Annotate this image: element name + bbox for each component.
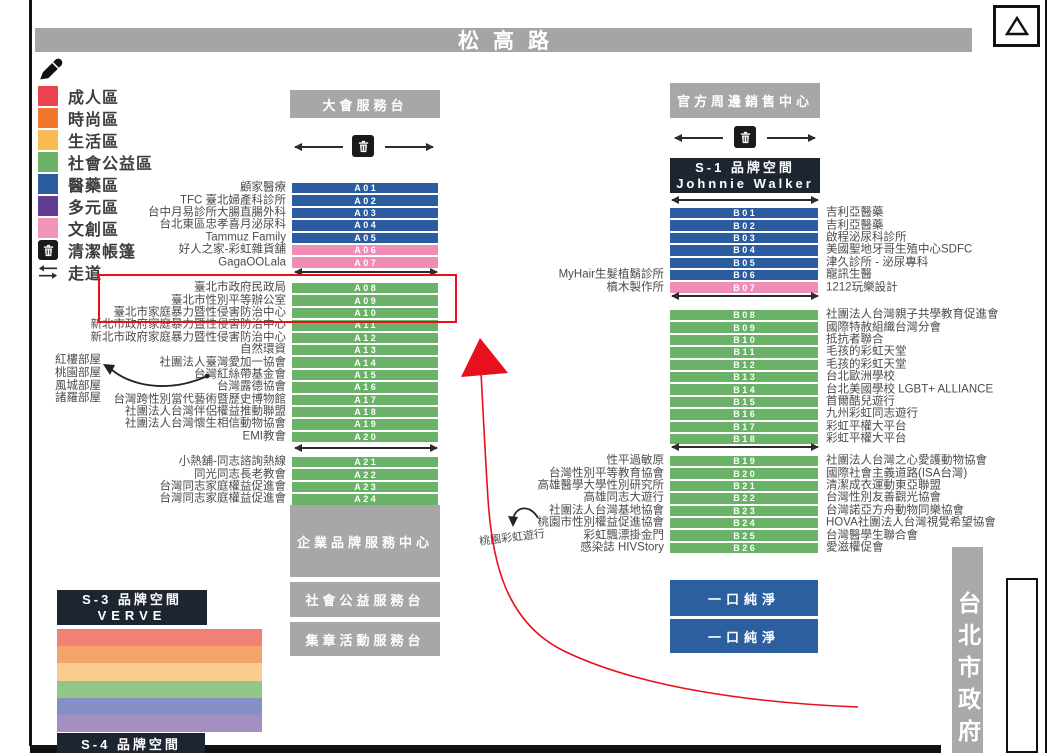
booth-code: A03 xyxy=(352,208,379,218)
rooms-arrow xyxy=(112,370,205,386)
booth-code: B23 xyxy=(731,506,758,516)
booth-exhibitor-label: 台北美國學校 LGBT+ ALLIANCE xyxy=(826,384,993,395)
booth-code: A05 xyxy=(352,233,379,243)
booth-code: B25 xyxy=(731,531,758,541)
street-bar: 松高路 xyxy=(35,28,972,52)
legend-item-label: 社會公益區 xyxy=(68,150,153,174)
booth-box: A05 xyxy=(292,233,438,243)
booth-exhibitor-label: 抵抗者聯合 xyxy=(826,334,884,345)
legend-item-label: 生活區 xyxy=(68,128,119,152)
booth-box: A12 xyxy=(292,333,438,343)
legend-color-swatch xyxy=(38,174,58,194)
booth-code: A21 xyxy=(352,457,379,467)
booth-row: 彩虹飄漂掛金門 B25 台灣醫學生聯合會 xyxy=(670,530,818,540)
booth-row: B01 吉利亞醫藥 xyxy=(670,208,818,218)
zone-label: VERVE xyxy=(98,608,167,624)
booth-code: A15 xyxy=(352,370,379,380)
legend-item: 生活區 xyxy=(38,130,153,150)
booth-exhibitor-label: 九州彩虹同志遊行 xyxy=(826,409,918,420)
booth-code: A22 xyxy=(352,470,379,480)
booth-row: 槙木製作所 B07 1212玩樂設計 xyxy=(670,282,818,292)
booth-exhibitor-label: 槙木製作所 xyxy=(607,282,665,293)
legend-item-cleaning-tent: 清潔帳篷 xyxy=(38,240,153,260)
booth-row: 同光同志長老教會 A22 xyxy=(292,469,438,479)
booth-exhibitor-label: 高雄同志大遊行 xyxy=(584,493,665,504)
zone-label: 官方周邊銷售中心 xyxy=(677,91,813,110)
booth-code: B26 xyxy=(731,543,758,553)
booth-exhibitor-label: 台灣同志家庭權益促進會 xyxy=(160,481,287,492)
booth-exhibitor-label: 台灣同志家庭權益促進會 xyxy=(160,494,287,505)
booth-exhibitor-label: 台中月易診所大腸直腸外科 xyxy=(148,207,286,218)
booth-row: B12 毛孩的彩虹天堂 xyxy=(670,360,818,370)
route-arrowhead xyxy=(461,338,508,377)
booth-exhibitor-label: GagaOOLala xyxy=(218,257,286,268)
booth-exhibitor-label: 愛滋權促會 xyxy=(826,542,884,553)
zone-s1-brand-space: S-1 品牌空間 Johnnie Walker xyxy=(670,158,820,193)
booth-exhibitor-label: 清潔成衣運動東亞聯盟 xyxy=(826,480,941,491)
booth-row: B18 彩虹平權大平台 xyxy=(670,434,818,444)
booth-exhibitor-label: 首爾酷兒遊行 xyxy=(826,396,895,407)
booth-exhibitor-label: 彩虹平權大平台 xyxy=(826,421,907,432)
legend-color-swatch xyxy=(38,86,58,106)
zone-label: 一口純淨 xyxy=(708,627,780,646)
booth-box: B19 xyxy=(670,456,818,466)
booth-row: B02 吉利亞醫藥 xyxy=(670,220,818,230)
booth-exhibitor-label: 社團法人台灣基地協會 xyxy=(549,505,664,516)
booth-box: B24 xyxy=(670,518,818,528)
booth-code: A11 xyxy=(352,320,378,330)
aisle-arrow xyxy=(295,447,437,449)
booth-box: B04 xyxy=(670,245,818,255)
legend-item-aisle: 走道 xyxy=(38,262,153,282)
booth-code: A09 xyxy=(352,296,379,306)
booth-exhibitor-label: 台灣紅絲帶基金會 xyxy=(194,369,286,380)
left-border xyxy=(29,0,32,746)
booth-box: B25 xyxy=(670,530,818,540)
booth-exhibitor-label: 寵訊生醫 xyxy=(826,270,872,281)
booth-box: A03 xyxy=(292,208,438,218)
room-label: 紅樓部屋 xyxy=(55,354,101,367)
zone-info-desk: 大會服務台 xyxy=(290,90,440,118)
booth-box: B21 xyxy=(670,481,818,491)
booth-exhibitor-label: 美國聖地牙哥生殖中心SDFC xyxy=(826,245,972,256)
room-label: 風城部屋 xyxy=(55,380,101,393)
booth-box: B05 xyxy=(670,258,818,268)
booth-row: B08 社團法人台灣親子共學教育促進會 xyxy=(670,310,818,320)
zone-label: 集章活動服務台 xyxy=(305,630,424,649)
booth-box: A07 xyxy=(292,257,438,267)
booth-exhibitor-label: 桃園市性別權益促進協會 xyxy=(538,518,665,529)
zone-label: 一口純淨 xyxy=(708,589,780,608)
booth-code: B18 xyxy=(731,434,758,444)
booth-row: 台灣露德協會 A16 xyxy=(292,382,438,392)
taoyuan-pride-label: 桃園彩虹遊行 xyxy=(478,525,545,549)
booth-row: 好人之家-彩虹雜貨舖 A06 xyxy=(292,245,438,255)
booth-row: 台灣同志家庭權益促進會 A23 xyxy=(292,482,438,492)
legend-items: 成人區 時尚區 生活區 社會公益區 xyxy=(38,86,153,238)
booth-group-b2: B08 社團法人台灣親子共學教育促進會 B09 國際特赦組織台灣分會 B10 抵… xyxy=(670,310,818,444)
booth-code: B14 xyxy=(731,385,758,395)
legend-item-label: 走道 xyxy=(68,260,102,284)
rainbow-stripe xyxy=(57,715,262,732)
booth-row: B10 抵抗者聯合 xyxy=(670,335,818,345)
booth-code: A17 xyxy=(352,395,379,405)
booth-row: 社團法人台灣懷生相信動物協會 A19 xyxy=(292,419,438,429)
booth-row: 社團法人台灣伴侶權益推動聯盟 A18 xyxy=(292,407,438,417)
booth-exhibitor-label: 新北市政府家庭暴力暨性侵害防治中心 xyxy=(91,332,287,343)
legend-item-label: 成人區 xyxy=(68,84,119,108)
booth-row: Tammuz Family A05 xyxy=(292,233,438,243)
booth-box: A17 xyxy=(292,395,438,405)
booth-box: B17 xyxy=(670,422,818,432)
booth-row: 社團法人台灣基地協會 B23 台灣諾亞方舟動物同樂協會 xyxy=(670,506,818,516)
booth-box: B08 xyxy=(670,310,818,320)
booth-code: B17 xyxy=(731,422,758,432)
booth-exhibitor-label: 彩虹飄漂掛金門 xyxy=(584,530,665,541)
booth-exhibitor-label: 性平過敏原 xyxy=(607,456,665,467)
booth-exhibitor-label: 啟程泌尿科診所 xyxy=(826,232,907,243)
booth-box: A08 xyxy=(292,283,438,293)
legend-color-swatch xyxy=(38,130,58,150)
booth-row: B13 台北歐洲學校 xyxy=(670,372,818,382)
booth-code: B01 xyxy=(731,208,758,218)
booth-box: B22 xyxy=(670,493,818,503)
rainbow-stripe xyxy=(57,663,262,680)
trash-icon xyxy=(734,126,756,148)
booth-code: B03 xyxy=(731,233,758,243)
booth-code: B07 xyxy=(731,283,758,293)
booth-box: A16 xyxy=(292,382,438,392)
city-hall-bar: 台北市政府 xyxy=(952,547,983,753)
booth-exhibitor-label: 自然環資 xyxy=(240,345,286,356)
booth-exhibitor-label: 高雄醫學大學性別研究所 xyxy=(538,480,665,491)
rainbow-stripe xyxy=(57,681,262,698)
booth-code: B13 xyxy=(731,372,758,382)
booth-row: EMI教會 A20 xyxy=(292,432,438,442)
zone-s3-brand-space: S-3 品牌空間 VERVE xyxy=(57,590,207,625)
aisle-arrow xyxy=(672,446,818,448)
booth-box: B23 xyxy=(670,506,818,516)
trash-icon xyxy=(38,240,58,260)
booth-row: 臺北市性別平等辦公室 A09 xyxy=(292,295,438,305)
empty-structure-outline xyxy=(1006,578,1038,753)
booth-box: B11 xyxy=(670,347,818,357)
booth-exhibitor-label: 吉利亞醫藥 xyxy=(826,220,884,231)
booth-group-a1: 顧家醫療 A01 TFC 臺北婦產科診所 A02 台中月易診所大腸直腸外科 A0… xyxy=(292,183,438,268)
booth-exhibitor-label: Tammuz Family xyxy=(205,232,286,243)
booth-code: A08 xyxy=(352,283,379,293)
booth-row: 台北東區忠孝喜月泌尿科 A04 xyxy=(292,220,438,230)
booth-exhibitor-label: 社團法人台灣伴侶權益推動聯盟 xyxy=(125,407,286,418)
booth-code: B09 xyxy=(731,323,758,333)
zone-pure-sip-1: 一口純淨 xyxy=(670,580,818,616)
booth-row: 臺北市家庭暴力暨性侵害防治中心 A10 xyxy=(292,308,438,318)
booth-exhibitor-label: 台灣性別平等教育協會 xyxy=(549,468,664,479)
booth-row: B05 津久診所 - 泌尿專科 xyxy=(670,258,818,268)
booth-group-a3: 小熱舖-同志諮詢熱線 A21 同光同志長老教會 A22 台灣同志家庭權益促進會 … xyxy=(292,457,438,505)
zone-s4-brand-space: S-4 品牌空間 xyxy=(57,733,205,753)
booth-code: B15 xyxy=(731,397,758,407)
legend-item: 成人區 xyxy=(38,86,153,106)
booth-box: A22 xyxy=(292,469,438,479)
booth-code: A18 xyxy=(352,407,379,417)
aisle-arrow xyxy=(767,137,815,139)
booth-box: B01 xyxy=(670,208,818,218)
booth-code: B08 xyxy=(731,310,758,320)
booth-exhibitor-label: 同光同志長老教會 xyxy=(194,469,286,480)
legend-item-label: 文創區 xyxy=(68,216,119,240)
booth-code: A13 xyxy=(352,345,379,355)
legend: 成人區 時尚區 生活區 社會公益區 xyxy=(38,86,153,282)
legend-item-label: 醫藥區 xyxy=(68,172,119,196)
booth-box: A18 xyxy=(292,407,438,417)
aisle-arrow xyxy=(675,137,723,139)
booth-row: B15 首爾酷兒遊行 xyxy=(670,397,818,407)
booth-group-b1: B01 吉利亞醫藥 B02 吉利亞醫藥 B03 啟程泌尿科診所 xyxy=(670,208,818,293)
booth-box: A24 xyxy=(292,494,438,504)
booth-row: 新北市政府家庭暴力暨性侵害防治中心 A12 xyxy=(292,333,438,343)
booth-code: B02 xyxy=(731,221,758,231)
booth-box: A23 xyxy=(292,482,438,492)
booth-exhibitor-label: 吉利亞醫藥 xyxy=(826,208,884,219)
booth-exhibitor-label: HOVA社團法人台灣視覺希望協會 xyxy=(826,518,996,529)
booth-code: B06 xyxy=(731,270,758,280)
aisle-arrow xyxy=(295,146,343,148)
booth-code: A12 xyxy=(352,333,379,343)
booth-box: B03 xyxy=(670,233,818,243)
booth-row: 小熱舖-同志諮詢熱線 A21 xyxy=(292,457,438,467)
room-label: 桃園部屋 xyxy=(55,367,101,380)
zone-label: S-1 品牌空間 xyxy=(695,160,795,176)
zone-label: S-3 品牌空間 xyxy=(82,592,182,608)
booth-box: A20 xyxy=(292,432,438,442)
booth-exhibitor-label: 台灣諾亞方舟動物同樂協會 xyxy=(826,505,964,516)
aisle-arrow xyxy=(385,146,433,148)
pen-icon xyxy=(38,55,64,82)
booth-code: A14 xyxy=(352,358,379,368)
legend-color-swatch xyxy=(38,218,58,238)
venue-map: 松高路 成人區 時尚區 xyxy=(0,0,1059,753)
taoyuan-arrow xyxy=(513,508,538,519)
booth-group-a2: 臺北市政府民政局 A08 臺北市性別平等辦公室 A09 臺北市家庭暴力暨性侵害防… xyxy=(292,283,438,442)
booth-row: 高雄醫學大學性別研究所 B21 清潔成衣運動東亞聯盟 xyxy=(670,481,818,491)
legend-item-label: 時尚區 xyxy=(68,106,119,130)
legend-item: 多元區 xyxy=(38,196,153,216)
booth-box: A13 xyxy=(292,345,438,355)
room-label: 諸羅部屋 xyxy=(55,392,101,405)
booth-code: B04 xyxy=(731,245,758,255)
booth-code: B05 xyxy=(731,258,758,268)
booth-box: A11 xyxy=(292,320,438,330)
booth-code: A24 xyxy=(352,494,379,504)
booth-code: B21 xyxy=(731,481,758,491)
booth-code: A20 xyxy=(352,432,379,442)
booth-box: A19 xyxy=(292,419,438,429)
rooms-arrowhead xyxy=(103,364,115,375)
booth-exhibitor-label: 臺北市家庭暴力暨性侵害防治中心 xyxy=(114,307,287,318)
booth-code: B12 xyxy=(731,360,758,370)
booth-row: 台灣性別平等教育協會 B20 國際社會主義道路(ISA台灣) xyxy=(670,468,818,478)
booth-exhibitor-label: EMI教會 xyxy=(243,431,286,442)
aisle-arrow xyxy=(672,295,818,297)
booth-code: A01 xyxy=(352,183,379,193)
booth-row: 台灣紅絲帶基金會 A15 xyxy=(292,370,438,380)
booth-exhibitor-label: 毛孩的彩虹天堂 xyxy=(826,359,907,370)
booth-row: 臺北市政府民政局 A08 xyxy=(292,283,438,293)
booth-box: B26 xyxy=(670,543,818,553)
booth-exhibitor-label: 臺北市政府民政局 xyxy=(194,283,286,294)
booth-row: B09 國際特赦組織台灣分會 xyxy=(670,322,818,332)
legend-color-swatch xyxy=(38,196,58,216)
booth-exhibitor-label: 感染誌 HIVStory xyxy=(580,542,664,553)
booth-box: B15 xyxy=(670,397,818,407)
booth-code: B11 xyxy=(731,347,757,357)
booth-exhibitor-label: 毛孩的彩虹天堂 xyxy=(826,347,907,358)
booth-code: B22 xyxy=(731,493,758,503)
booth-exhibitor-label: 國際社會主義道路(ISA台灣) xyxy=(826,468,967,479)
booth-code: A04 xyxy=(352,220,379,230)
zone-label: Johnnie Walker xyxy=(676,176,814,192)
booth-box: B14 xyxy=(670,384,818,394)
booth-row: B17 彩虹平權大平台 xyxy=(670,422,818,432)
booth-row: 自然環資 A13 xyxy=(292,345,438,355)
booth-row: GagaOOLala A07 xyxy=(292,257,438,267)
booth-code: B16 xyxy=(731,409,758,419)
legend-item: 時尚區 xyxy=(38,108,153,128)
booth-box: B07 xyxy=(670,282,818,292)
booth-box: A15 xyxy=(292,370,438,380)
booth-row: B03 啟程泌尿科診所 xyxy=(670,233,818,243)
legend-item-label: 清潔帳篷 xyxy=(68,238,136,262)
booth-exhibitor-label: 小熱舖-同志諮詢熱線 xyxy=(179,457,286,468)
rainbow-flag xyxy=(57,629,262,732)
booth-box: A21 xyxy=(292,457,438,467)
booth-exhibitor-label: TFC 臺北婦產科診所 xyxy=(180,195,286,206)
booth-row: 桃園市性別權益促進協會 B24 HOVA社團法人台灣視覺希望協會 xyxy=(670,518,818,528)
zone-label: 大會服務台 xyxy=(322,95,407,114)
booth-box: B09 xyxy=(670,322,818,332)
zone-corporate-service-center: 企業品牌服務中心 xyxy=(290,505,440,577)
aisle-arrows-icon xyxy=(38,262,58,282)
aisle-arrow xyxy=(295,271,437,273)
booth-box: B10 xyxy=(670,335,818,345)
zone-label: S-4 品牌空間 xyxy=(81,737,181,753)
booth-row: MyHair生髮植鬍診所 B06 寵訊生醫 xyxy=(670,270,818,280)
legend-item-label: 多元區 xyxy=(68,194,119,218)
booth-exhibitor-label: 好人之家-彩虹雜貨舖 xyxy=(179,245,286,256)
zone-stamp-activity-desk: 集章活動服務台 xyxy=(290,622,440,656)
booth-box: A10 xyxy=(292,308,438,318)
booth-box: B20 xyxy=(670,468,818,478)
booth-exhibitor-label: 臺北市性別平等辦公室 xyxy=(171,295,286,306)
zone-pure-sip-2: 一口純淨 xyxy=(670,619,818,653)
booth-row: 台灣跨性別當代藝術暨歷史博物館 A17 xyxy=(292,395,438,405)
booth-row: 社團法人臺灣愛加一協會 A14 xyxy=(292,357,438,367)
booth-exhibitor-label: MyHair生髮植鬍診所 xyxy=(559,270,664,281)
booth-code: A19 xyxy=(352,419,379,429)
legend-item: 文創區 xyxy=(38,218,153,238)
booth-box: A01 xyxy=(292,183,438,193)
booth-row: B14 台北美國學校 LGBT+ ALLIANCE xyxy=(670,384,818,394)
triangle-icon xyxy=(1005,15,1029,37)
city-hall-label: 台北市政府 xyxy=(951,591,985,753)
trash-icon xyxy=(352,135,374,157)
booth-exhibitor-label: 台灣跨性別當代藝術暨歷史博物館 xyxy=(114,394,287,405)
booth-row: 台中月易診所大腸直腸外科 A03 xyxy=(292,208,438,218)
rooms-list: 紅樓部屋桃園部屋風城部屋諸羅部屋 xyxy=(55,354,101,405)
booth-code: A10 xyxy=(352,308,379,318)
booth-box: B18 xyxy=(670,434,818,444)
booth-box: A04 xyxy=(292,220,438,230)
booth-exhibitor-label: 國際特赦組織台灣分會 xyxy=(826,322,941,333)
booth-box: B06 xyxy=(670,270,818,280)
taoyuan-arrowhead xyxy=(508,516,518,527)
booth-code: A16 xyxy=(352,382,379,392)
booth-exhibitor-label: 社團法人臺灣愛加一協會 xyxy=(160,357,287,368)
booth-box: B16 xyxy=(670,409,818,419)
booth-code: A23 xyxy=(352,482,379,492)
booth-row: TFC 臺北婦產科診所 A02 xyxy=(292,195,438,205)
booth-row: B16 九州彩虹同志遊行 xyxy=(670,409,818,419)
legend-color-swatch xyxy=(38,152,58,172)
zone-label: 企業品牌服務中心 xyxy=(297,532,433,551)
booth-exhibitor-label: 社團法人台灣之心愛護動物協會 xyxy=(826,456,987,467)
booth-box: B02 xyxy=(670,220,818,230)
booth-code: B24 xyxy=(731,518,758,528)
booth-exhibitor-label: 台灣露德協會 xyxy=(217,382,286,393)
legend-item: 社會公益區 xyxy=(38,152,153,172)
right-border xyxy=(1045,0,1047,753)
booth-exhibitor-label: 社團法人台灣懷生相信動物協會 xyxy=(125,419,286,430)
booth-exhibitor-label: 顧家醫療 xyxy=(240,183,286,194)
booth-code: A02 xyxy=(352,196,379,206)
booth-row: 高雄同志大遊行 B22 台灣性別友善觀光協會 xyxy=(670,493,818,503)
booth-box: A02 xyxy=(292,195,438,205)
legend-color-swatch xyxy=(38,108,58,128)
booth-row: 台灣同志家庭權益促進會 A24 xyxy=(292,494,438,504)
legend-item: 醫藥區 xyxy=(38,174,153,194)
zone-social-welfare-desk: 社會公益服務台 xyxy=(290,582,440,617)
booth-group-b3: 性平過敏原 B19 社團法人台灣之心愛護動物協會 台灣性別平等教育協會 B20 … xyxy=(670,456,818,553)
booth-exhibitor-label: 津久診所 - 泌尿專科 xyxy=(826,257,928,268)
rainbow-stripe xyxy=(57,646,262,663)
booth-exhibitor-label: 彩虹平權大平台 xyxy=(826,434,907,445)
booth-box: B12 xyxy=(670,360,818,370)
booth-code: B20 xyxy=(731,469,758,479)
booth-row: B11 毛孩的彩虹天堂 xyxy=(670,347,818,357)
booth-exhibitor-label: 1212玩樂設計 xyxy=(826,282,898,293)
booth-row: B04 美國聖地牙哥生殖中心SDFC xyxy=(670,245,818,255)
booth-code: A06 xyxy=(352,245,379,255)
booth-exhibitor-label: 台灣醫學生聯合會 xyxy=(826,530,918,541)
booth-code: B10 xyxy=(731,335,758,345)
booth-box: A06 xyxy=(292,245,438,255)
booth-row: 新北市政府家庭暴力暨性侵害防治中心 A11 xyxy=(292,320,438,330)
zone-merch-center: 官方周邊銷售中心 xyxy=(670,83,820,118)
booth-exhibitor-label: 台灣性別友善觀光協會 xyxy=(826,493,941,504)
zone-label: 社會公益服務台 xyxy=(305,590,424,609)
booth-code: A07 xyxy=(352,258,379,268)
aisle-arrow xyxy=(672,199,818,201)
booth-exhibitor-label: 新北市政府家庭暴力暨性侵害防治中心 xyxy=(91,320,287,331)
rainbow-stripe xyxy=(57,629,262,646)
booth-box: B13 xyxy=(670,372,818,382)
booth-box: A09 xyxy=(292,295,438,305)
booth-row: 感染誌 HIVStory B26 愛滋權促會 xyxy=(670,543,818,553)
booth-row: 性平過敏原 B19 社團法人台灣之心愛護動物協會 xyxy=(670,456,818,466)
booth-code: B19 xyxy=(731,456,758,466)
booth-exhibitor-label: 社團法人台灣親子共學教育促進會 xyxy=(826,310,999,321)
